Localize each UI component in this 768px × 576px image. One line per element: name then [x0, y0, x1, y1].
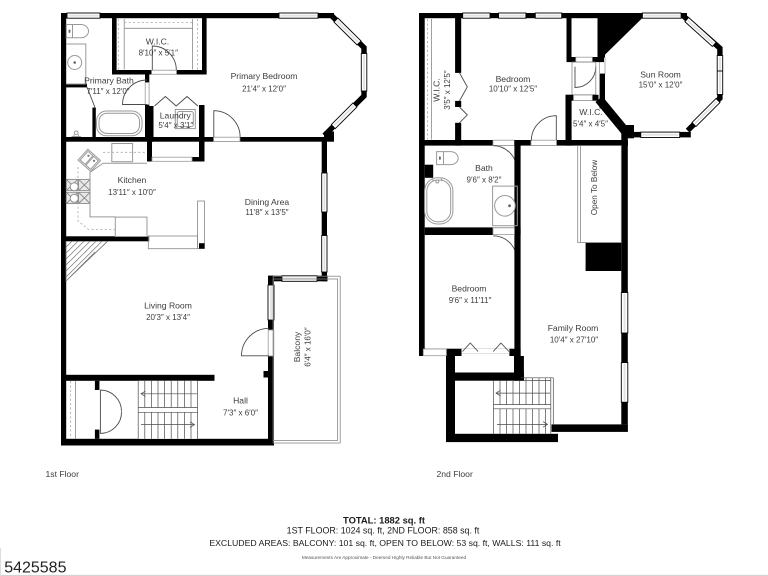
svg-text:21′4″ x 12′0″: 21′4″ x 12′0″: [242, 84, 286, 93]
svg-text:EXCLUDED AREAS: BALCONY: 101 s: EXCLUDED AREAS: BALCONY: 101 sq. ft, OPE…: [209, 538, 561, 548]
svg-text:13′11″ x 10′0″: 13′11″ x 10′0″: [108, 188, 156, 197]
svg-text:Sun Room: Sun Room: [640, 69, 681, 79]
svg-text:Hall: Hall: [233, 396, 248, 406]
svg-text:2nd Floor: 2nd Floor: [437, 469, 473, 479]
svg-text:11′8″ x 13′5″: 11′8″ x 13′5″: [245, 208, 288, 217]
svg-text:Bedroom: Bedroom: [452, 284, 487, 294]
svg-text:Balcony: Balcony: [292, 331, 302, 362]
svg-text:5425585: 5425585: [4, 559, 66, 576]
svg-text:15′0″ x 12′0″: 15′0″ x 12′0″: [639, 81, 683, 90]
svg-text:Dining Area: Dining Area: [245, 197, 290, 207]
svg-text:10′10″ x 12′5″: 10′10″ x 12′5″: [489, 85, 537, 94]
svg-text:W.I.C.: W.I.C.: [431, 78, 441, 101]
svg-text:Family Room: Family Room: [548, 323, 599, 333]
svg-text:7′3″ x 6′0″: 7′3″ x 6′0″: [223, 408, 258, 417]
svg-text:TOTAL: 1882 sq. ft: TOTAL: 1882 sq. ft: [343, 514, 425, 525]
svg-text:Open To Below: Open To Below: [590, 160, 599, 215]
svg-text:Kitchen: Kitchen: [118, 175, 147, 185]
svg-text:Laundry: Laundry: [160, 110, 192, 120]
svg-text:8′10″ x 5′1″: 8′10″ x 5′1″: [139, 49, 179, 58]
svg-text:Bath: Bath: [475, 163, 493, 173]
svg-text:Bedroom: Bedroom: [496, 74, 531, 84]
svg-text:3′5″ x 12′5″: 3′5″ x 12′5″: [443, 70, 452, 110]
svg-text:W.I.C.: W.I.C.: [579, 107, 602, 117]
svg-text:5′4″ x 3′1″: 5′4″ x 3′1″: [158, 121, 193, 130]
svg-text:Primary Bedroom: Primary Bedroom: [231, 71, 298, 81]
svg-text:20′3″ x 13′4″: 20′3″ x 13′4″: [146, 313, 190, 322]
svg-text:9′6″ x 11′11″: 9′6″ x 11′11″: [449, 296, 492, 305]
svg-text:7′11″ x 12′0″: 7′11″ x 12′0″: [86, 87, 129, 96]
svg-text:Living Room: Living Room: [144, 301, 192, 311]
svg-text:1st Floor: 1st Floor: [46, 469, 80, 479]
svg-text:Measurements Are Approximate -: Measurements Are Approximate - Deemed Hi…: [302, 555, 467, 560]
svg-text:1ST FLOOR: 1024 sq. ft, 2ND FL: 1ST FLOOR: 1024 sq. ft, 2ND FLOOR: 858 s…: [287, 526, 480, 536]
svg-text:5′4″ x 4′5″: 5′4″ x 4′5″: [573, 120, 608, 129]
svg-text:10′4″ x 27′10″: 10′4″ x 27′10″: [550, 335, 598, 344]
svg-text:6′4″ x 16′0″: 6′4″ x 16′0″: [303, 327, 312, 367]
svg-text:Primary Bath: Primary Bath: [84, 76, 134, 86]
svg-text:9′6″ x 8′2″: 9′6″ x 8′2″: [467, 175, 502, 184]
svg-text:W.I.C.: W.I.C.: [146, 37, 169, 47]
